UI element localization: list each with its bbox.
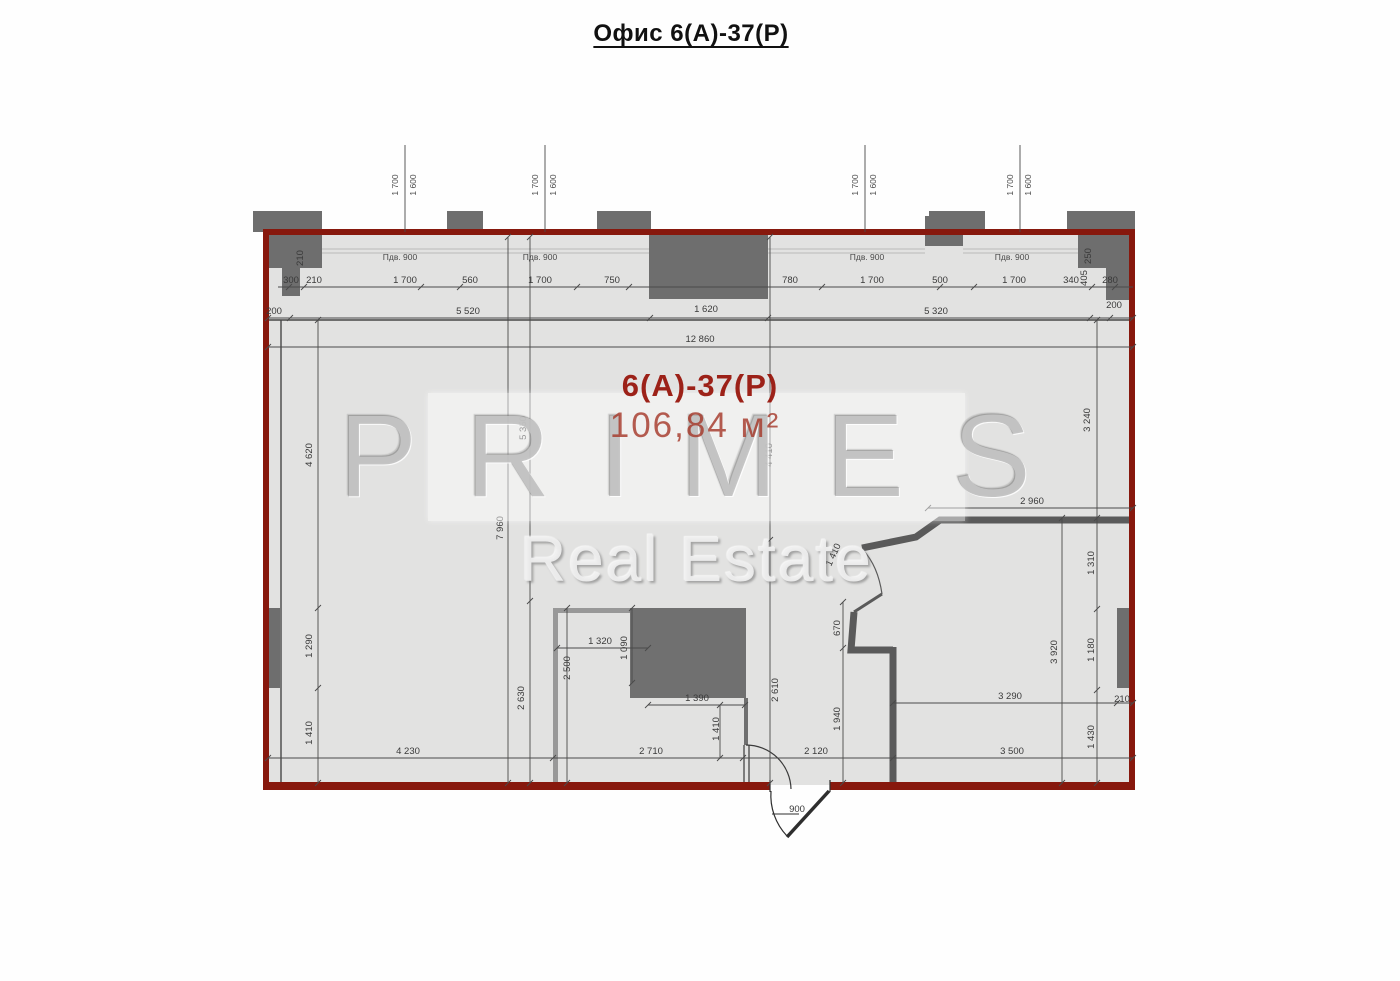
- dimension-label: 750: [604, 275, 620, 286]
- dimension-label: 1 600: [548, 174, 558, 196]
- dimension-label: 1 390: [685, 693, 709, 704]
- dimension-label: 12 860: [685, 334, 714, 345]
- dimension-label: 1 430: [1086, 725, 1097, 749]
- dimension-label: 1 600: [868, 174, 878, 196]
- dimension-label: 1 320: [588, 636, 612, 647]
- dimension-label: 340: [1063, 275, 1079, 286]
- dimension-label: 210: [1114, 694, 1130, 705]
- room-area-label: 106,84 м²: [555, 406, 835, 446]
- dimension-label: 3 500: [1000, 746, 1024, 757]
- dimension-label: 2 120: [804, 746, 828, 757]
- dimension-label: 210: [306, 275, 322, 286]
- dimension-label: 3 240: [1082, 408, 1093, 432]
- dimension-label: 1 700: [393, 275, 417, 286]
- dimension-label: Пдв. 900: [850, 252, 885, 262]
- dimension-label: 5 520: [456, 306, 480, 317]
- dimension-label: 1 290: [304, 634, 315, 658]
- watermark-subtitle: Real Estate: [428, 522, 965, 596]
- core-block: [630, 608, 746, 698]
- dimension-label: 1 600: [408, 174, 418, 196]
- dimension-label: 1 410: [711, 717, 722, 741]
- dimension-label: 560: [462, 275, 478, 286]
- dimension-label: 200: [1106, 300, 1122, 311]
- dimension-label: 1 410: [304, 721, 315, 745]
- dimension-label: 2 630: [516, 686, 527, 710]
- dimension-label: 2 710: [639, 746, 663, 757]
- dimension-label: 1 700: [850, 174, 860, 196]
- dimension-label: 900: [789, 804, 805, 815]
- dimension-label: 1 700: [528, 275, 552, 286]
- dimension-label: 5 320: [924, 306, 948, 317]
- dimension-label: 1 700: [1002, 275, 1026, 286]
- dimension-label: 1 700: [530, 174, 540, 196]
- floor-plan-page: Офис 6(А)-37(Р): [0, 0, 1400, 981]
- dimension-label: 200: [266, 306, 282, 317]
- dimension-label: 1 600: [1023, 174, 1033, 196]
- dimension-label: Пдв. 900: [523, 252, 558, 262]
- dimension-label: 1 700: [1005, 174, 1015, 196]
- dimension-label: 250: [1083, 248, 1094, 264]
- dimension-label: 2 500: [562, 656, 573, 680]
- dimension-label: 1 180: [1086, 638, 1097, 662]
- dimension-label: 3 290: [998, 691, 1022, 702]
- dimension-label: 1 090: [619, 636, 630, 660]
- dimension-label: 1 940: [832, 707, 843, 731]
- dimension-label: Пдв. 900: [383, 252, 418, 262]
- dimension-label: 3 920: [1049, 640, 1060, 664]
- dimension-label: 1 310: [1086, 551, 1097, 575]
- dimension-label: 1 700: [860, 275, 884, 286]
- dimension-label: Пдв. 900: [995, 252, 1030, 262]
- dimension-label: 1 700: [390, 174, 400, 196]
- dimension-label: 780: [782, 275, 798, 286]
- dimension-label: 670: [832, 620, 843, 636]
- dimension-label: 500: [932, 275, 948, 286]
- dimension-label: 2 610: [770, 678, 781, 702]
- dimension-label: 405: [1079, 270, 1090, 286]
- dimension-label: 4 230: [396, 746, 420, 757]
- dimension-label: 210: [295, 250, 306, 266]
- room-number-label: 6(А)-37(Р): [560, 368, 840, 404]
- dimension-label: 1 620: [694, 304, 718, 315]
- dimension-label: 300: [283, 275, 299, 286]
- dimension-label: 280: [1102, 275, 1118, 286]
